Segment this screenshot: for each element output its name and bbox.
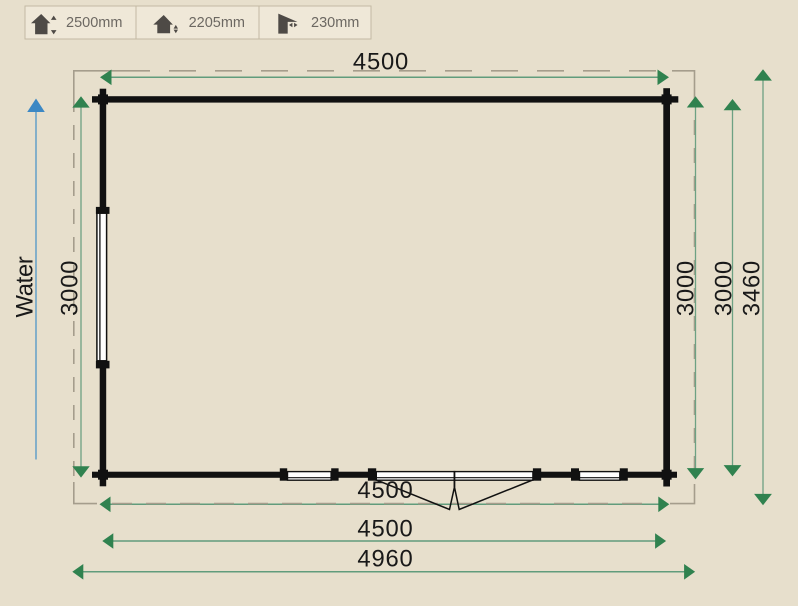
svg-text:3000: 3000	[672, 260, 699, 316]
svg-text:3000: 3000	[710, 260, 737, 316]
svg-text:4500: 4500	[353, 49, 409, 76]
svg-text:Water: Water	[11, 256, 38, 317]
svg-text:230mm: 230mm	[311, 15, 359, 31]
svg-text:3000: 3000	[57, 260, 84, 316]
svg-text:3460: 3460	[739, 260, 766, 316]
svg-text:2205mm: 2205mm	[189, 15, 245, 31]
svg-text:2500mm: 2500mm	[66, 15, 122, 31]
svg-text:4500: 4500	[357, 516, 413, 543]
svg-text:4500: 4500	[357, 477, 413, 504]
svg-text:4960: 4960	[357, 546, 413, 573]
